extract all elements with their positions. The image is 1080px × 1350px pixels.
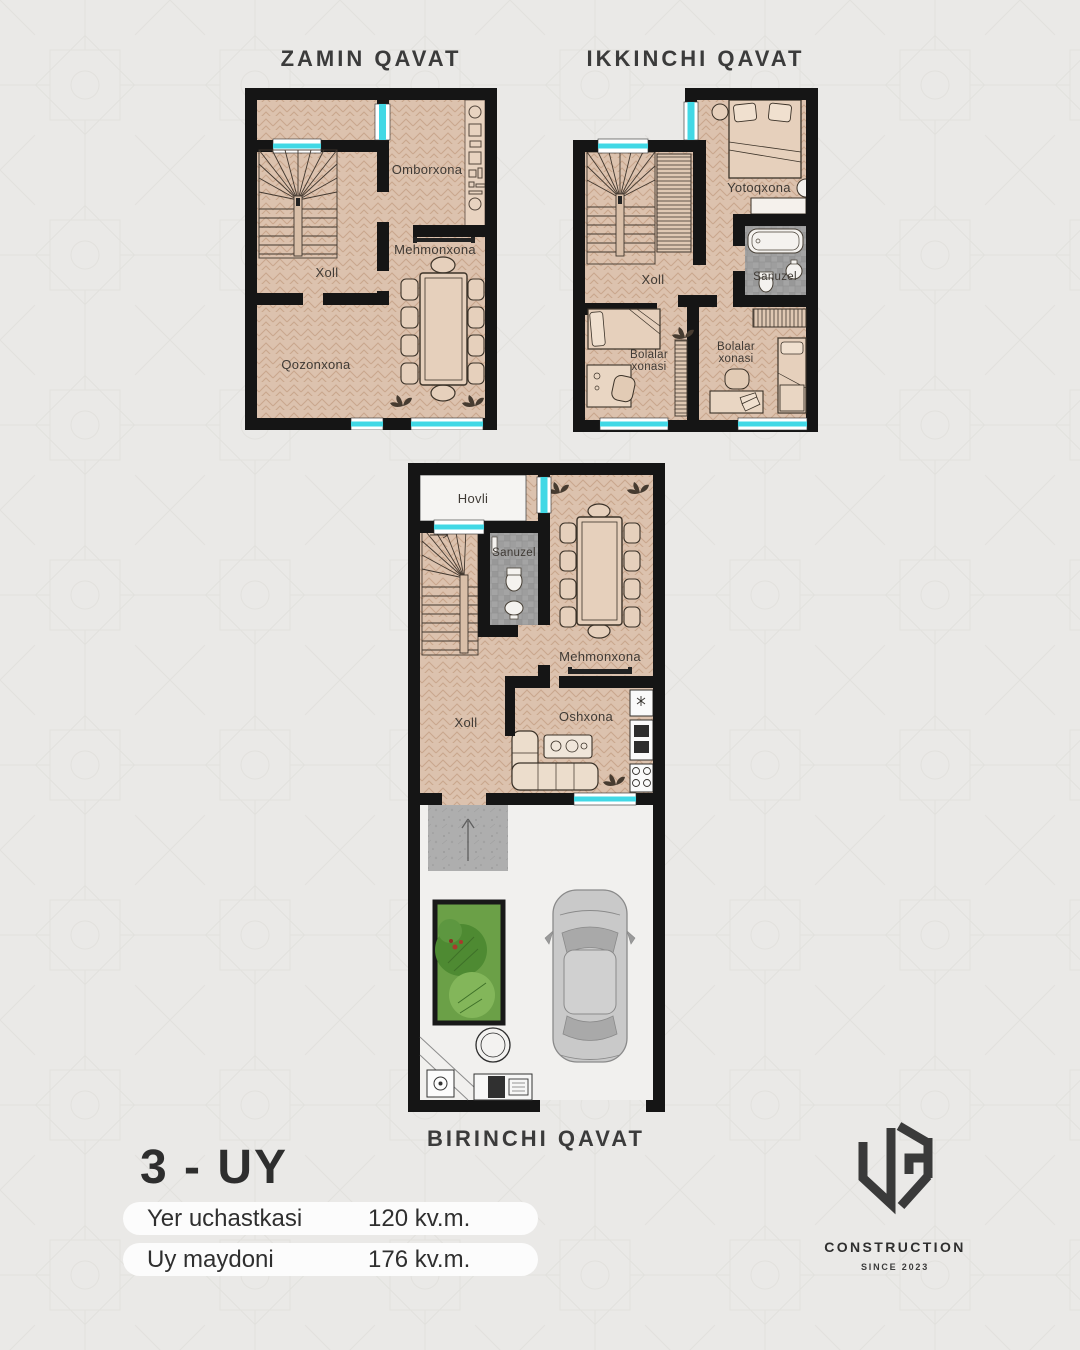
room-label-mehmonxona: Mehmonxona bbox=[394, 242, 476, 257]
window-icon bbox=[351, 418, 383, 430]
floor-plan-birinchi: Hovli Sanuzel Mehmonxona Xoll Oshxona bbox=[408, 463, 665, 1112]
room-label-yotoqxona: Yotoqxona bbox=[727, 180, 791, 195]
room-label-bolalar-right: Bolalar bbox=[717, 341, 755, 353]
window-icon bbox=[600, 418, 668, 430]
window-icon bbox=[273, 139, 321, 153]
info-value: 176 kv.m. bbox=[368, 1246, 514, 1274]
bathroom bbox=[745, 226, 806, 295]
logo-since: SINCE 2023 bbox=[795, 1262, 995, 1272]
logo-name: CONSTRUCTION bbox=[795, 1239, 995, 1255]
window-icon bbox=[684, 102, 698, 140]
room-label-sanuzel: Sanuzel bbox=[492, 547, 536, 559]
room-label-bolalar-left: Bolalar bbox=[630, 349, 668, 361]
garden-bed bbox=[435, 902, 503, 1023]
company-logo: CONSTRUCTION SINCE 2023 bbox=[795, 1118, 995, 1272]
title-ikkinchi-qavat: IKKINCHI QAVAT bbox=[558, 46, 833, 72]
room-label-xoll: Xoll bbox=[455, 715, 478, 730]
ug-monogram-icon bbox=[847, 1118, 943, 1222]
info-value: 120 kv.m. bbox=[368, 1205, 514, 1233]
room-label-hovli: Hovli bbox=[458, 491, 488, 506]
round-table bbox=[476, 1028, 510, 1062]
room-label-omborxona: Omborxona bbox=[392, 162, 463, 177]
room-label-xoll: Xoll bbox=[316, 265, 339, 280]
bathtub-icon bbox=[748, 229, 803, 253]
wardrobe bbox=[657, 154, 691, 252]
house-title: 3 - UY bbox=[140, 1140, 288, 1195]
info-row-house: Uy maydoni 176 kv.m. bbox=[123, 1243, 538, 1276]
floor-plan-zamin: Omborxona Mehmonxona Xoll Qozonxona bbox=[245, 88, 497, 430]
title-birinchi-qavat: BIRINCHI QAVAT bbox=[400, 1126, 672, 1152]
window-icon bbox=[434, 520, 484, 534]
floor-plan-ikkinchi: Yotoqxona Sanuzel Xoll Bolalar xonasi Bo… bbox=[573, 88, 818, 432]
walkway bbox=[428, 805, 508, 871]
room-label-oshxona: Oshxona bbox=[559, 709, 614, 724]
window-icon bbox=[598, 139, 648, 153]
car-icon bbox=[545, 890, 635, 1062]
window-icon bbox=[411, 418, 483, 430]
room-label-qozonxona: Qozonxona bbox=[281, 357, 351, 372]
poster-page: ZAMIN QAVAT IKKINCHI QAVAT BIRINCHI QAVA… bbox=[0, 0, 1080, 1350]
info-row-land: Yer uchastkasi 120 kv.m. bbox=[123, 1202, 538, 1235]
room-label-bolalar-right-2: xonasi bbox=[718, 353, 753, 365]
info-label: Uy maydoni bbox=[147, 1246, 274, 1274]
room-label-sanuzel: Sanuzel bbox=[753, 271, 797, 283]
bookcase bbox=[675, 340, 687, 416]
entrance-opening bbox=[442, 793, 486, 805]
toilet-icon bbox=[506, 568, 522, 591]
storage-shelving-unit bbox=[465, 100, 485, 226]
dining-table bbox=[560, 504, 640, 638]
window-icon bbox=[574, 793, 636, 805]
yard-units bbox=[427, 1070, 532, 1100]
window-icon bbox=[738, 418, 807, 430]
room-label-xoll: Xoll bbox=[642, 272, 665, 287]
title-zamin-qavat: ZAMIN QAVAT bbox=[245, 46, 497, 72]
window-icon bbox=[375, 104, 390, 140]
info-panel: Yer uchastkasi 120 kv.m. Uy maydoni 176 … bbox=[123, 1202, 538, 1284]
room-label-mehmonxona: Mehmonxona bbox=[559, 649, 641, 664]
kitchen-appliances bbox=[630, 690, 653, 792]
info-label: Yer uchastkasi bbox=[147, 1205, 302, 1233]
room-label-bolalar-left-2: xonasi bbox=[631, 361, 666, 373]
coffee-table bbox=[544, 735, 592, 758]
window-icon bbox=[537, 477, 551, 513]
